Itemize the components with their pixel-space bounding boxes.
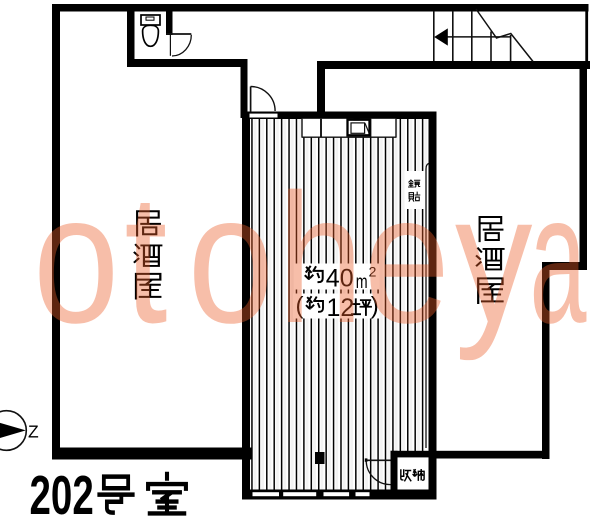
svg-text:Z: Z	[28, 422, 39, 442]
svg-text:202: 202	[30, 465, 94, 522]
